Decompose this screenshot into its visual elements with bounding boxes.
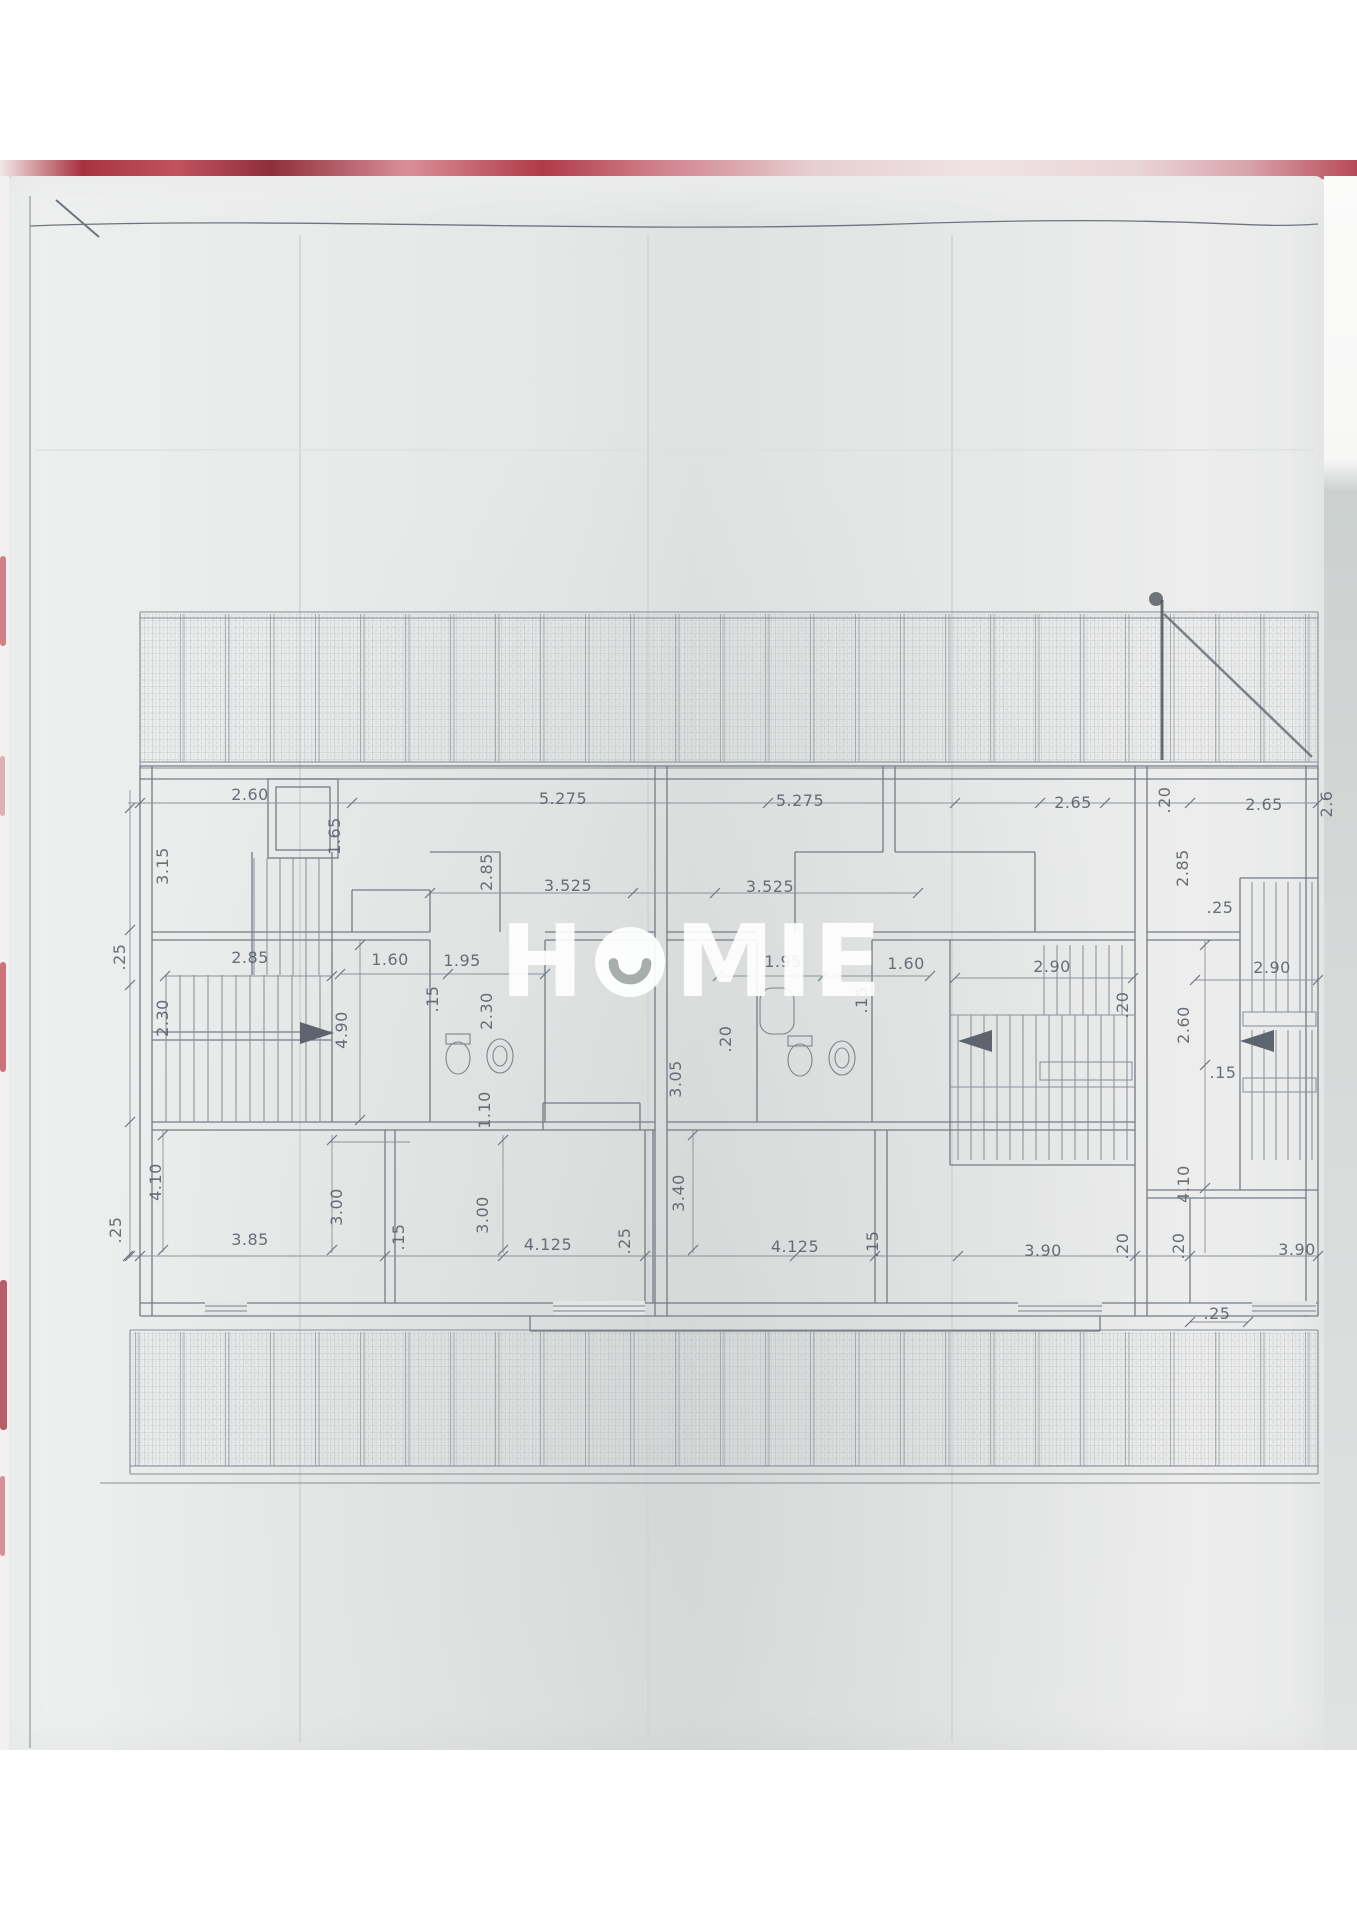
watermark-smiley-o-icon	[594, 926, 666, 998]
pencil-smudge	[1149, 592, 1163, 606]
dimension-label: 3.05	[666, 1060, 685, 1098]
dimension-label: 2.30	[477, 992, 496, 1030]
stair-rail	[1243, 1078, 1316, 1092]
dimension-label: 2.90	[1253, 958, 1291, 977]
dimension-labels: 2.605.2755.2752.65.202.652.63.151.652.85…	[106, 785, 1336, 1323]
dimension-label: 2.65	[1245, 795, 1283, 814]
dimension-label: 1.60	[887, 954, 925, 973]
dimension-label: 3.00	[327, 1188, 346, 1226]
dimension-label: .25	[110, 944, 129, 971]
dimension-label: .20	[1169, 1233, 1188, 1260]
dimension-label: 3.40	[669, 1174, 688, 1212]
watermark-letter-h: H	[500, 912, 585, 1012]
dimension-label: 1.65	[325, 817, 344, 855]
scanned-floor-plan-photo: 2.605.2755.2752.65.202.652.63.151.652.85…	[0, 0, 1357, 1920]
stair-direction-arrow	[1240, 1030, 1274, 1052]
dimension-label: 4.125	[524, 1235, 572, 1254]
dimension-ticks	[123, 798, 1323, 1327]
dimension-label: 3.90	[1278, 1240, 1316, 1259]
dimension-label: 3.15	[153, 847, 172, 885]
dimension-label: 1.60	[371, 950, 409, 969]
stair-rail	[1040, 1062, 1132, 1080]
toilet-fixture	[788, 1044, 812, 1076]
stair-rail	[1243, 1012, 1316, 1026]
dimension-label: .25	[615, 1228, 634, 1255]
bidet-fixture	[829, 1041, 855, 1075]
dimension-label: 2.60	[231, 785, 269, 804]
dimension-label: 2.85	[477, 853, 496, 891]
dimension-label: 3.525	[746, 877, 794, 896]
dimension-label: .25	[1204, 1304, 1231, 1323]
dimension-label: 3.90	[1024, 1241, 1062, 1260]
dimension-label: 4.10	[1174, 1165, 1193, 1203]
dimension-label: 3.00	[473, 1196, 492, 1234]
stair-direction-arrow	[300, 1022, 334, 1044]
watermark-letters-mie: MIE	[675, 912, 883, 1012]
dimension-label: 5.275	[776, 791, 824, 810]
dimension-label: .15	[423, 986, 442, 1013]
dimension-label: 3.525	[544, 876, 592, 895]
dimension-label: 2.30	[153, 999, 172, 1037]
bidet-fixture	[487, 1039, 513, 1073]
dimension-label: .20	[1113, 1233, 1132, 1260]
stair-direction-arrow	[958, 1030, 992, 1052]
roof-tile-hatch-bottom	[100, 1330, 1320, 1483]
dimension-label: .15	[389, 1224, 408, 1251]
toilet-fixture	[446, 1042, 470, 1074]
dimension-label: .20	[1113, 992, 1132, 1019]
corner-tick-mark	[56, 200, 99, 237]
dimension-label: .15	[863, 1231, 882, 1258]
dimension-label: 4.125	[771, 1237, 819, 1256]
dimension-label: 1.95	[443, 951, 481, 970]
dimension-label: 5.275	[539, 789, 587, 808]
dimension-label: 1.10	[475, 1091, 494, 1129]
dimension-label: 2.85	[231, 948, 269, 967]
dimension-label: 4.90	[332, 1011, 351, 1049]
homie-watermark: H MIE	[500, 912, 883, 1012]
dimension-label: 2.60	[1174, 1006, 1193, 1044]
dimension-label: 2.65	[1054, 793, 1092, 812]
dimension-label: 3.85	[231, 1230, 269, 1249]
dimension-label: 2.90	[1033, 957, 1071, 976]
dimension-label: .20	[1155, 787, 1174, 814]
dimension-label: .15	[1210, 1063, 1237, 1082]
dimension-label: 2.6	[1317, 791, 1336, 818]
roof-tile-hatch-top	[140, 592, 1318, 768]
dimension-label: .25	[106, 1217, 125, 1244]
dimension-label: 4.10	[146, 1163, 165, 1201]
dimension-label: 2.85	[1173, 849, 1192, 887]
dimension-label: .20	[716, 1026, 735, 1053]
dimension-label: .25	[1207, 898, 1234, 917]
